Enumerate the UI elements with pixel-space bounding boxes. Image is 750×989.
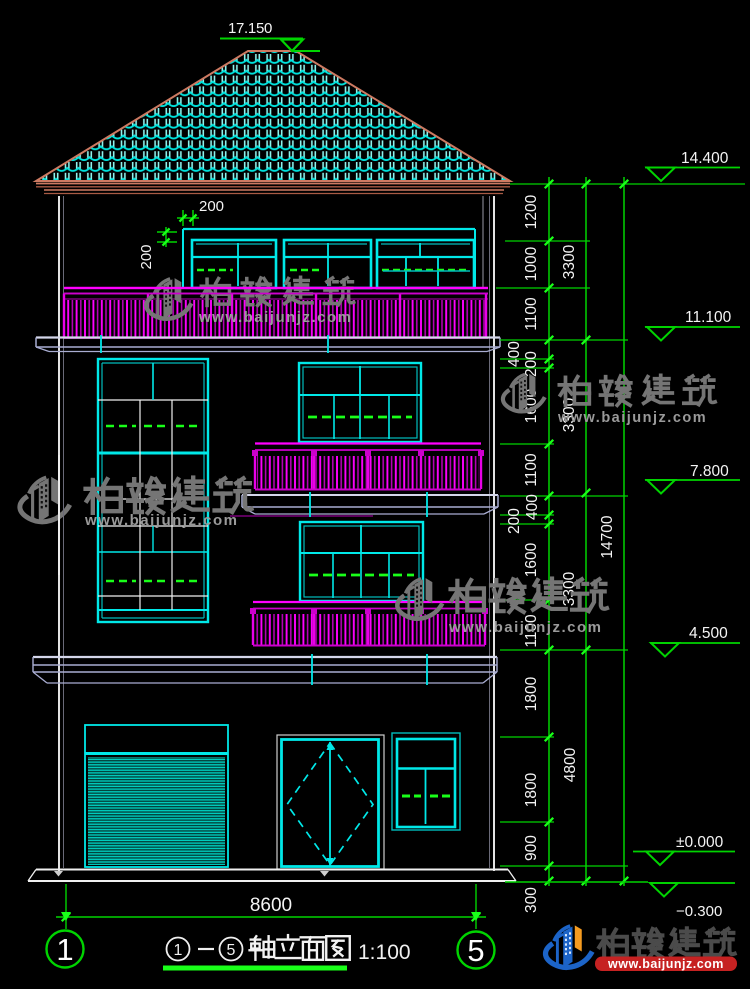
svg-text:17.150: 17.150	[228, 20, 272, 37]
svg-text:−0.300: −0.300	[676, 903, 722, 920]
svg-text:1: 1	[56, 932, 73, 967]
svg-text:1200: 1200	[523, 194, 540, 229]
svg-text:www.baijunjz.com: www.baijunjz.com	[84, 512, 238, 529]
svg-text:1800: 1800	[523, 676, 540, 711]
svg-text:1600: 1600	[523, 542, 540, 577]
svg-text:1800: 1800	[523, 772, 540, 807]
svg-text:400: 400	[524, 494, 541, 520]
svg-text:4800: 4800	[562, 747, 579, 782]
svg-text:11.100: 11.100	[685, 309, 732, 326]
svg-text:1:100: 1:100	[358, 941, 411, 964]
svg-text:14.400: 14.400	[681, 150, 729, 167]
svg-text:5: 5	[467, 933, 484, 968]
svg-text:1000: 1000	[523, 246, 540, 281]
svg-text:www.baijunjz.com: www.baijunjz.com	[198, 309, 352, 326]
svg-text:200: 200	[199, 198, 224, 215]
svg-text:400: 400	[506, 341, 523, 367]
svg-text:14700: 14700	[599, 515, 616, 558]
svg-text:1100: 1100	[523, 297, 540, 331]
svg-text:900: 900	[523, 835, 540, 861]
svg-text:3300: 3300	[561, 571, 578, 606]
svg-text:www.baijunjz.com: www.baijunjz.com	[557, 410, 707, 426]
svg-text:200: 200	[523, 351, 540, 377]
svg-text:200: 200	[138, 244, 155, 269]
svg-text:300: 300	[523, 887, 540, 913]
svg-text:www.baijunjz.com: www.baijunjz.com	[448, 619, 602, 636]
svg-text:±0.000: ±0.000	[676, 834, 724, 851]
svg-text:5: 5	[227, 942, 236, 959]
svg-text:1: 1	[174, 942, 183, 959]
svg-text:8600: 8600	[250, 895, 292, 916]
svg-text:4.500: 4.500	[689, 625, 728, 642]
svg-text:1100: 1100	[523, 453, 540, 487]
svg-text:7.800: 7.800	[690, 463, 729, 480]
svg-text:3300: 3300	[561, 244, 578, 279]
svg-text:200: 200	[506, 508, 523, 534]
svg-text:www.baijunjz.com: www.baijunjz.com	[607, 957, 724, 971]
